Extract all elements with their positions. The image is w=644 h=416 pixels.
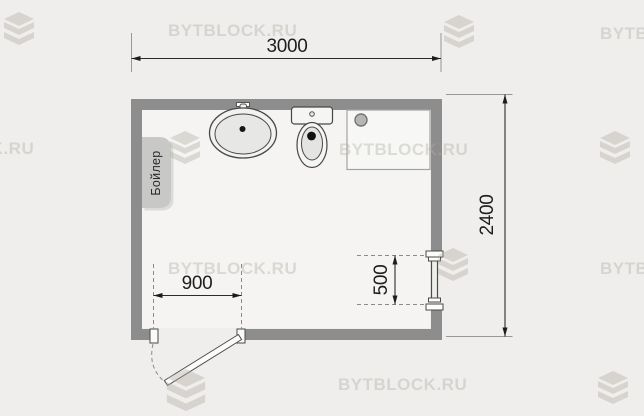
wall-top bbox=[131, 99, 442, 110]
dimension-room-depth: 2400 bbox=[446, 95, 513, 337]
shower-drain bbox=[355, 114, 367, 126]
wall-right-upper bbox=[431, 99, 442, 251]
wall-left bbox=[131, 99, 142, 340]
dimension-room-width: 3000 bbox=[132, 33, 442, 72]
dimension-label-900: 900 bbox=[182, 273, 213, 294]
floorplan-drawing: Бойлер 3000 bbox=[0, 0, 644, 416]
door bbox=[150, 329, 245, 386]
sink-drain bbox=[240, 126, 246, 132]
dimension-label-2400: 2400 bbox=[477, 194, 498, 235]
door-jamb-left bbox=[150, 329, 158, 343]
wall-bottom-left-stub bbox=[131, 329, 150, 340]
door-swing-arc bbox=[152, 344, 165, 382]
flush-button bbox=[310, 112, 315, 117]
shower-tray bbox=[347, 110, 430, 170]
door-leaf bbox=[164, 335, 241, 386]
floorplan-canvas: Бойлер 3000 bbox=[0, 0, 644, 416]
wall-bottom-right bbox=[245, 329, 442, 340]
boiler-label: Бойлер bbox=[149, 150, 163, 195]
dimension-label-500: 500 bbox=[371, 265, 392, 296]
dimension-label-3000: 3000 bbox=[266, 36, 307, 57]
boiler: Бойлер bbox=[142, 137, 174, 211]
